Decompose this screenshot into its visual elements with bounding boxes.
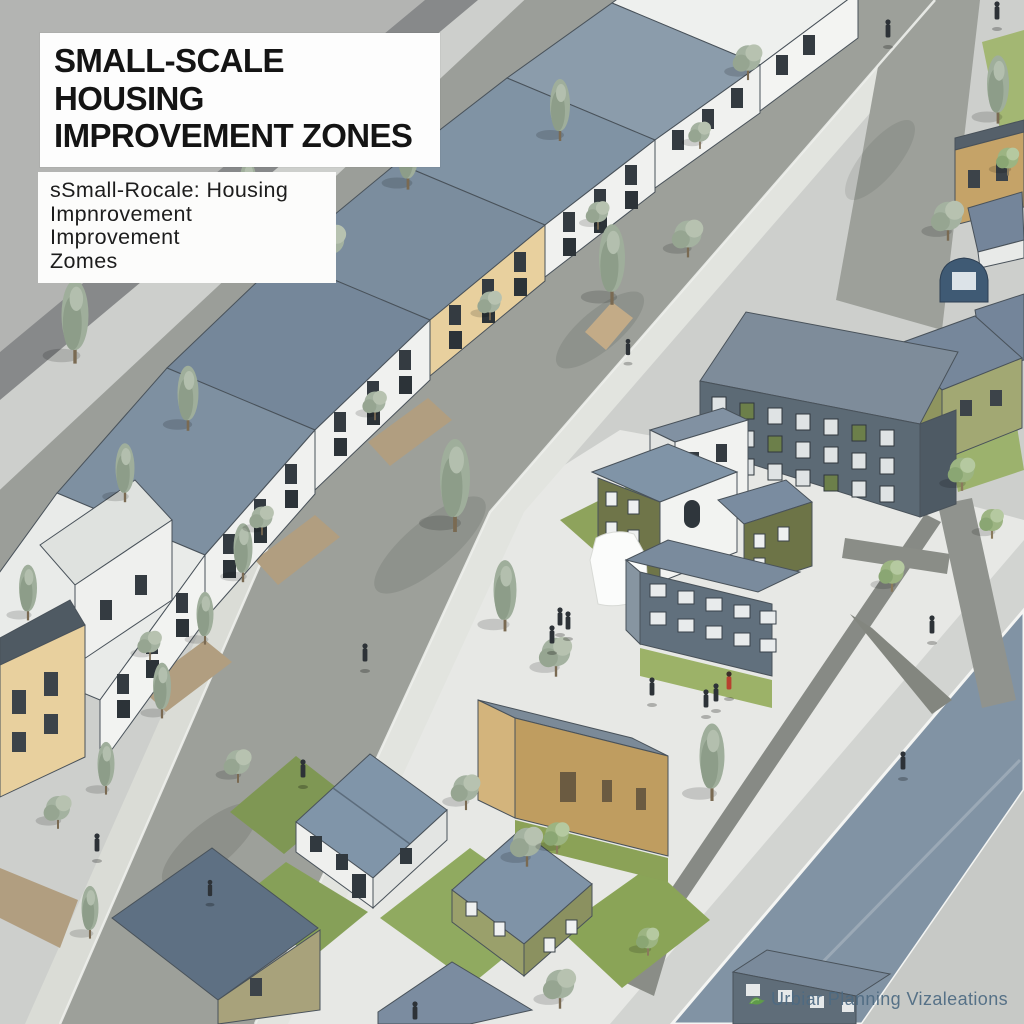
watermark-text: Urbiar Planning Vizaleations — [771, 989, 1008, 1010]
watermark: Urbiar Planning Vizaleations — [747, 989, 1008, 1010]
title-line-1: SMALL-SCALE HOUSING — [54, 42, 426, 117]
title-box: SMALL-SCALE HOUSING IMPROVEMENT ZONES — [40, 33, 440, 167]
caption-line-1: sSmall-Rocale: Housing — [50, 179, 324, 203]
poster-canvas: SMALL-SCALE HOUSING IMPROVEMENT ZONES sS… — [0, 0, 1024, 1024]
blue-arched-shed — [940, 258, 988, 302]
caption-box: sSmall-Rocale: Housing Impnrovement Impr… — [38, 172, 336, 283]
title-line-2: IMPROVEMENT ZONES — [54, 117, 426, 155]
caption-line-3: Zomes — [50, 250, 324, 274]
logo-leaf-icon — [747, 992, 767, 1008]
caption-line-2: Impnrovement Improvement — [50, 203, 324, 250]
